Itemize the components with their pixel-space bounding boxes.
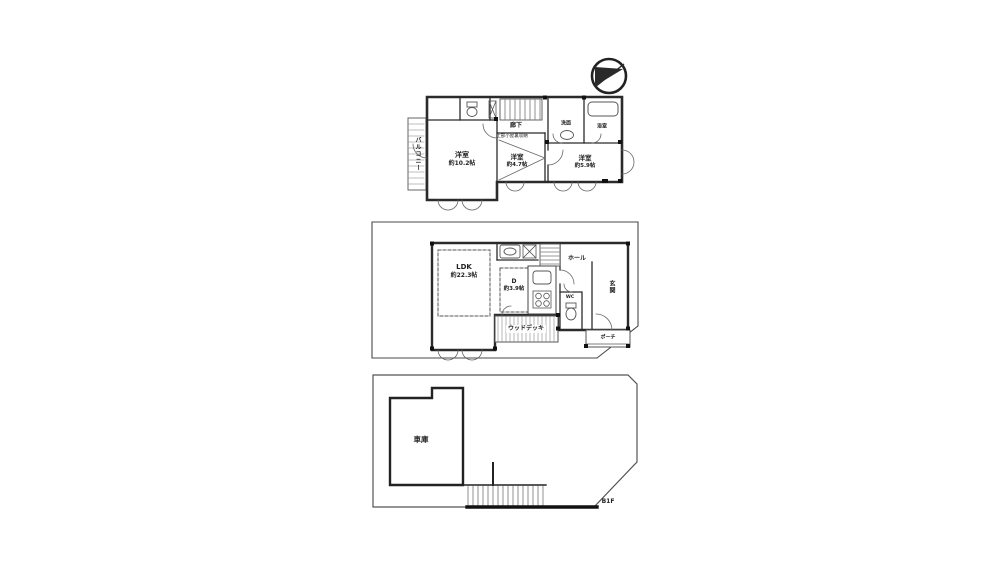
corridor-note: 上部小屋裏収納 bbox=[496, 134, 528, 140]
room-label-2f-west-5: 洋室 約5.9帖 bbox=[575, 154, 596, 170]
floorplan-canvas: バルコニー 洋室 約10.2帖 洋室 約4.7帖 洋室 約5.9帖 廊下 上部小… bbox=[0, 0, 1000, 563]
sink-plan-icon bbox=[561, 131, 574, 140]
entrance-label: 玄関 bbox=[607, 280, 615, 294]
room-size: 約3.9帖 bbox=[504, 286, 525, 293]
room-label-2f-west-4: 洋室 約4.7帖 bbox=[507, 153, 528, 169]
kitchen-counter bbox=[528, 266, 556, 314]
porch-label: ポーチ bbox=[600, 335, 615, 342]
washstand-icon bbox=[500, 245, 520, 258]
compass-icon bbox=[592, 59, 626, 93]
room-name: D bbox=[504, 278, 525, 286]
wood-deck-label: ウッドデッキ bbox=[506, 325, 546, 333]
stairs-1f-icon bbox=[540, 244, 560, 266]
room-size: 約4.7帖 bbox=[507, 162, 528, 169]
ldk-label: LDK 約22.3帖 bbox=[451, 263, 478, 281]
room-size: 約10.2帖 bbox=[449, 161, 476, 169]
room-label-2f-west-10: 洋室 約10.2帖 bbox=[449, 151, 476, 169]
balcony-label: バルコニー bbox=[413, 137, 421, 172]
garage-label: 車庫 bbox=[414, 435, 429, 445]
floorplan-drawing bbox=[0, 0, 1000, 563]
toilet-plan-icon bbox=[467, 102, 477, 117]
room-name: 洋室 bbox=[507, 153, 528, 162]
den-label: D 約3.9帖 bbox=[504, 278, 525, 294]
wc-label: WC bbox=[566, 295, 574, 301]
room-size: 約5.9帖 bbox=[575, 163, 596, 170]
bathroom-label: 浴室 bbox=[597, 124, 607, 131]
bathtub-plan-icon bbox=[588, 102, 618, 116]
stairs-plan-icon bbox=[500, 99, 542, 120]
washroom-label: 洗面 bbox=[561, 121, 571, 128]
b1f-floor-label: B1F bbox=[602, 498, 615, 506]
room-name: 洋室 bbox=[575, 154, 596, 163]
hall-label: ホール bbox=[568, 255, 586, 263]
sink-plan-icon bbox=[533, 271, 551, 284]
toilet-plan-icon-1f bbox=[566, 303, 576, 320]
corridor-label: 廊下 bbox=[510, 122, 522, 130]
room-size: 約22.3帖 bbox=[451, 273, 478, 281]
